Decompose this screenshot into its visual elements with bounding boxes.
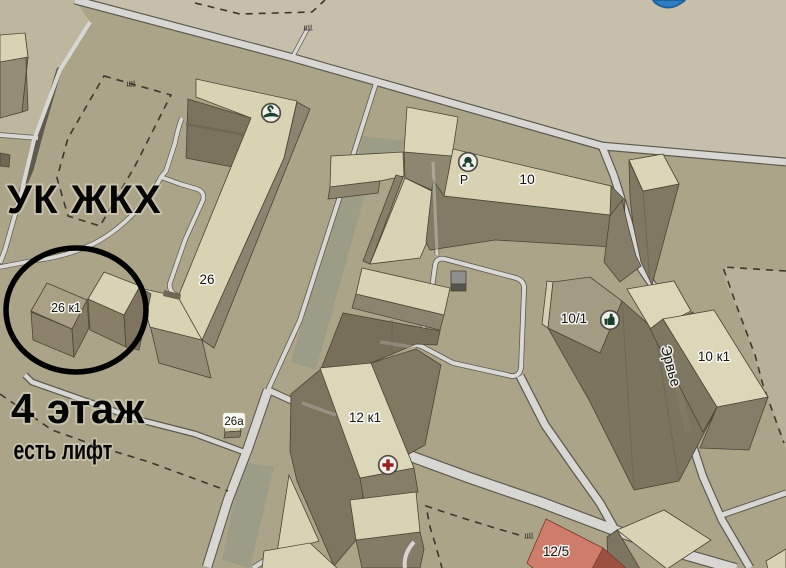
svg-text:10: 10 bbox=[519, 171, 535, 187]
svg-text:26: 26 bbox=[199, 272, 214, 287]
svg-text:10 к1: 10 к1 bbox=[698, 349, 730, 364]
svg-text:26а: 26а bbox=[224, 416, 244, 428]
svg-text:10/1: 10/1 bbox=[561, 311, 587, 326]
svg-text:12 к1: 12 к1 bbox=[349, 410, 381, 425]
svg-text:есть лифт: есть лифт bbox=[14, 435, 113, 465]
svg-text:Р: Р bbox=[460, 173, 468, 187]
svg-text:26 к1: 26 к1 bbox=[51, 301, 81, 315]
svg-text:4 этаж: 4 этаж bbox=[11, 385, 146, 432]
svg-text:УК ЖКХ: УК ЖКХ bbox=[7, 178, 162, 222]
svg-text:12/5: 12/5 bbox=[543, 544, 569, 559]
